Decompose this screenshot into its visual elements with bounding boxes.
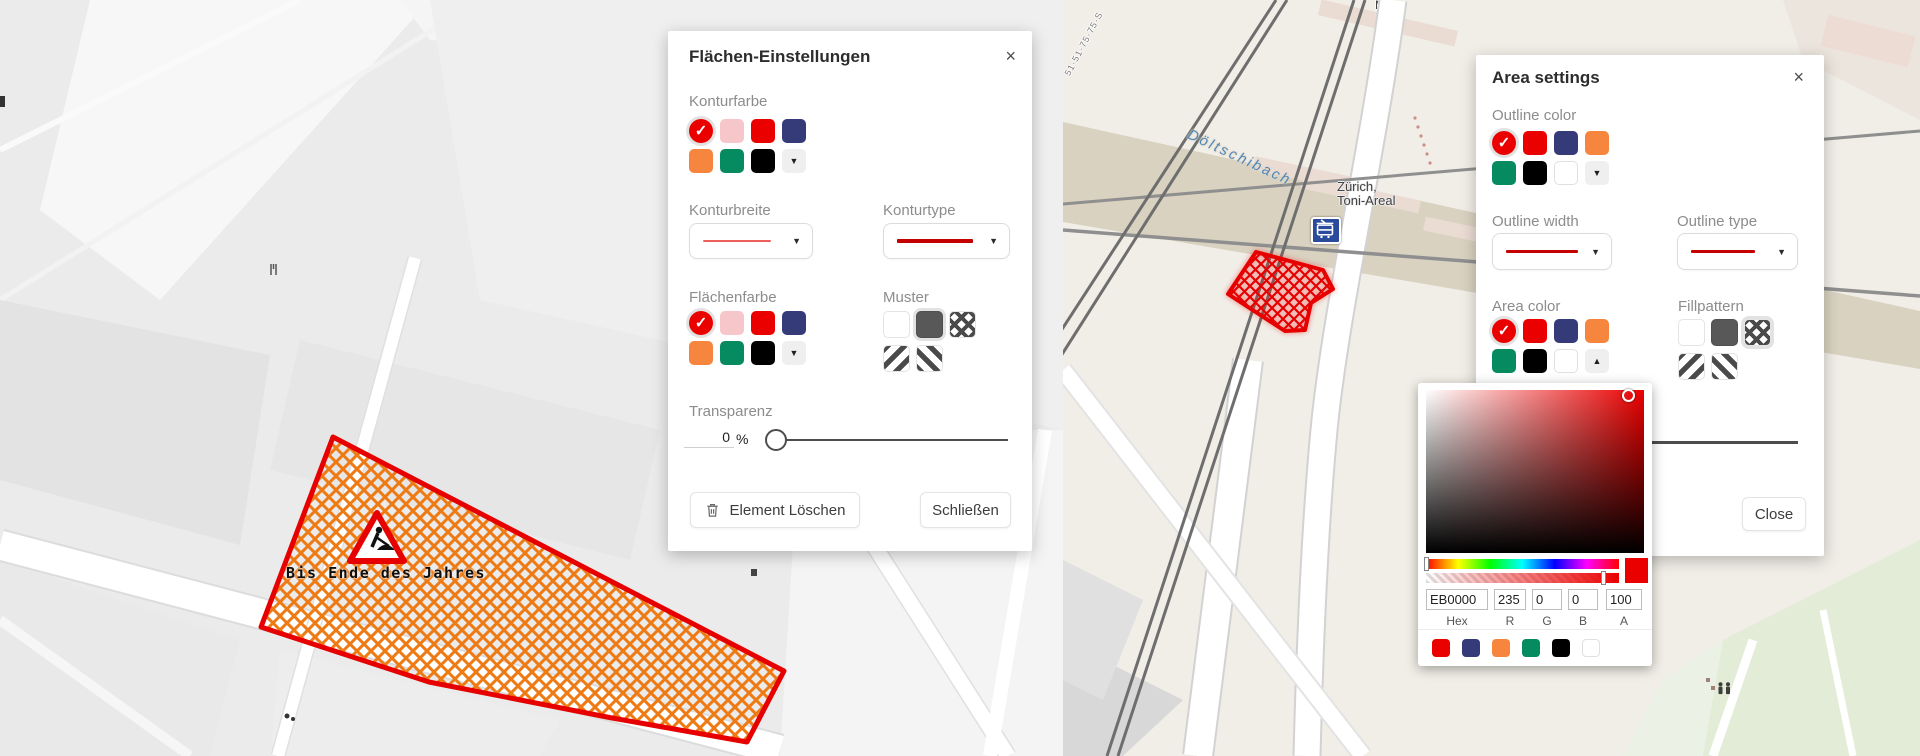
area-annotation-label: Bis Ende des Jahres [286, 564, 486, 582]
pattern-swatch-diag2[interactable] [916, 345, 943, 372]
color-swatch[interactable] [1552, 639, 1570, 657]
color-swatch[interactable] [1523, 349, 1547, 373]
area-color-label: Area color [1492, 298, 1560, 315]
color-swatch[interactable] [1585, 319, 1609, 343]
transparency-slider-handle[interactable] [765, 429, 787, 451]
konturbreite-label: Konturbreite [689, 202, 771, 219]
transparency-input[interactable] [684, 429, 734, 448]
dialog-title: Area settings [1492, 68, 1600, 88]
expand-palette-button[interactable]: ▼ [782, 341, 806, 365]
check-icon: ✓ [1498, 321, 1511, 339]
check-icon: ✓ [1498, 133, 1511, 151]
pattern-swatch-cross[interactable] [1744, 319, 1771, 346]
outline-width-label: Outline width [1492, 213, 1579, 230]
outline-color-palette: ✓▼ [1492, 131, 1609, 185]
flaechenfarbe-palette: ✓▼ [689, 311, 806, 365]
preset-color-palette [1432, 639, 1600, 657]
outline-type-label: Outline type [1677, 213, 1757, 230]
g-input[interactable] [1532, 589, 1562, 610]
collapse-palette-button[interactable]: ▲ [1585, 349, 1609, 373]
a-input[interactable] [1606, 589, 1642, 610]
close-icon[interactable]: × [1005, 47, 1016, 65]
r-input[interactable] [1494, 589, 1526, 610]
muster-label: Muster [883, 289, 929, 306]
tram-station-icon [1311, 217, 1341, 244]
outline-type-dropdown[interactable]: ▼ [1677, 233, 1798, 270]
color-swatch[interactable] [720, 341, 744, 365]
app-canvas: Europaallee Europaallee Europaallee Eisg… [0, 0, 1920, 756]
chevron-down-icon: ▼ [989, 236, 998, 246]
color-swatch[interactable]: ✓ [689, 311, 713, 335]
color-swatch[interactable] [1522, 639, 1540, 657]
konturtype-dropdown[interactable]: ▼ [883, 223, 1010, 259]
line-type-preview [897, 239, 973, 243]
delete-element-label: Element Löschen [730, 502, 846, 519]
close-icon[interactable]: × [1793, 68, 1804, 86]
color-swatch[interactable] [720, 119, 744, 143]
dialog-title: Flächen-Einstellungen [689, 47, 870, 67]
color-swatch[interactable] [1585, 131, 1609, 155]
color-swatch[interactable] [1492, 161, 1516, 185]
chevron-down-icon: ▼ [792, 236, 801, 246]
color-swatch[interactable] [1554, 131, 1578, 155]
pattern-swatch-diag1[interactable] [883, 345, 910, 372]
color-swatch[interactable] [782, 311, 806, 335]
color-swatch[interactable] [782, 119, 806, 143]
check-icon: ✓ [695, 121, 708, 139]
transparenz-label: Transparenz [689, 403, 773, 420]
close-dialog-label: Schließen [932, 502, 999, 519]
pattern-swatch-solid[interactable] [916, 311, 943, 338]
transparency-unit: % [736, 431, 748, 447]
color-swatch[interactable] [1554, 319, 1578, 343]
color-swatch[interactable] [1523, 161, 1547, 185]
color-swatch[interactable] [751, 341, 775, 365]
line-type-preview [1691, 250, 1755, 253]
g-label: G [1532, 614, 1562, 628]
alpha-slider-handle[interactable] [1601, 571, 1606, 585]
station-label: Zürich, Toni-Areal [1337, 180, 1396, 208]
pattern-swatch-none[interactable] [883, 311, 910, 338]
chevron-down-icon: ▼ [1591, 247, 1600, 257]
trash-icon [705, 502, 720, 518]
flaechenfarbe-label: Flächenfarbe [689, 289, 777, 306]
muster-palette [883, 311, 976, 372]
pattern-swatch-none[interactable] [1678, 319, 1705, 346]
chevron-down-icon: ▼ [1777, 247, 1786, 257]
color-picker-popup: Hex R G B A [1418, 383, 1652, 666]
check-icon: ✓ [695, 313, 708, 331]
a-label: A [1606, 614, 1642, 628]
alpha-slider[interactable] [1426, 573, 1619, 583]
color-swatch[interactable]: ✓ [1492, 131, 1516, 155]
color-swatch[interactable] [1554, 161, 1578, 185]
color-swatch[interactable] [689, 341, 713, 365]
hex-label: Hex [1426, 614, 1488, 628]
color-swatch[interactable] [1492, 349, 1516, 373]
konturbreite-dropdown[interactable]: ▼ [689, 223, 813, 259]
flaechen-settings-dialog: Flächen-Einstellungen × Konturfarbe ✓▼ K… [668, 31, 1032, 551]
color-swatch[interactable] [1492, 639, 1510, 657]
b-input[interactable] [1568, 589, 1598, 610]
close-dialog-button[interactable]: Close [1742, 497, 1806, 531]
color-swatch[interactable] [1554, 349, 1578, 373]
color-swatch[interactable] [751, 311, 775, 335]
pattern-swatch-diag2[interactable] [1711, 353, 1738, 380]
color-swatch[interactable] [1582, 639, 1600, 657]
color-swatch[interactable] [1462, 639, 1480, 657]
r-label: R [1494, 614, 1526, 628]
hue-slider[interactable] [1426, 559, 1619, 569]
line-width-preview [1506, 250, 1578, 254]
color-swatch[interactable] [1523, 131, 1547, 155]
pattern-swatch-cross[interactable] [949, 311, 976, 338]
hue-slider-handle[interactable] [1424, 557, 1429, 571]
color-swatch[interactable] [1432, 639, 1450, 657]
delete-element-button[interactable]: Element Löschen [690, 492, 860, 528]
color-swatch[interactable] [751, 119, 775, 143]
hex-input[interactable] [1426, 589, 1488, 610]
b-label: B [1568, 614, 1598, 628]
divider [1418, 629, 1652, 630]
line-width-preview [703, 240, 771, 242]
color-swatch[interactable] [751, 149, 775, 173]
color-cursor-icon[interactable] [1622, 389, 1635, 402]
current-color-preview [1625, 558, 1648, 583]
outline-color-label: Outline color [1492, 107, 1576, 124]
konturfarbe-palette: ✓▼ [689, 119, 806, 173]
color-swatch[interactable]: ✓ [689, 119, 713, 143]
pattern-swatch-solid[interactable] [1711, 319, 1738, 346]
outline-width-dropdown[interactable]: ▼ [1492, 233, 1612, 270]
color-swatch[interactable] [720, 149, 744, 173]
color-swatch[interactable] [720, 311, 744, 335]
saturation-value-field[interactable] [1426, 390, 1644, 553]
color-swatch[interactable] [689, 149, 713, 173]
fillpattern-palette [1678, 319, 1771, 380]
color-swatch[interactable] [1523, 319, 1547, 343]
area-color-palette: ✓▲ [1492, 319, 1609, 373]
close-dialog-label: Close [1755, 506, 1793, 523]
transparency-slider-track[interactable] [780, 439, 1008, 441]
fillpattern-label: Fillpattern [1678, 298, 1744, 315]
expand-palette-button[interactable]: ▼ [1585, 161, 1609, 185]
konturtype-label: Konturtype [883, 202, 956, 219]
pattern-swatch-diag1[interactable] [1678, 353, 1705, 380]
close-dialog-button[interactable]: Schließen [920, 492, 1011, 528]
konturfarbe-label: Konturfarbe [689, 93, 767, 110]
expand-palette-button[interactable]: ▼ [782, 149, 806, 173]
color-swatch[interactable]: ✓ [1492, 319, 1516, 343]
